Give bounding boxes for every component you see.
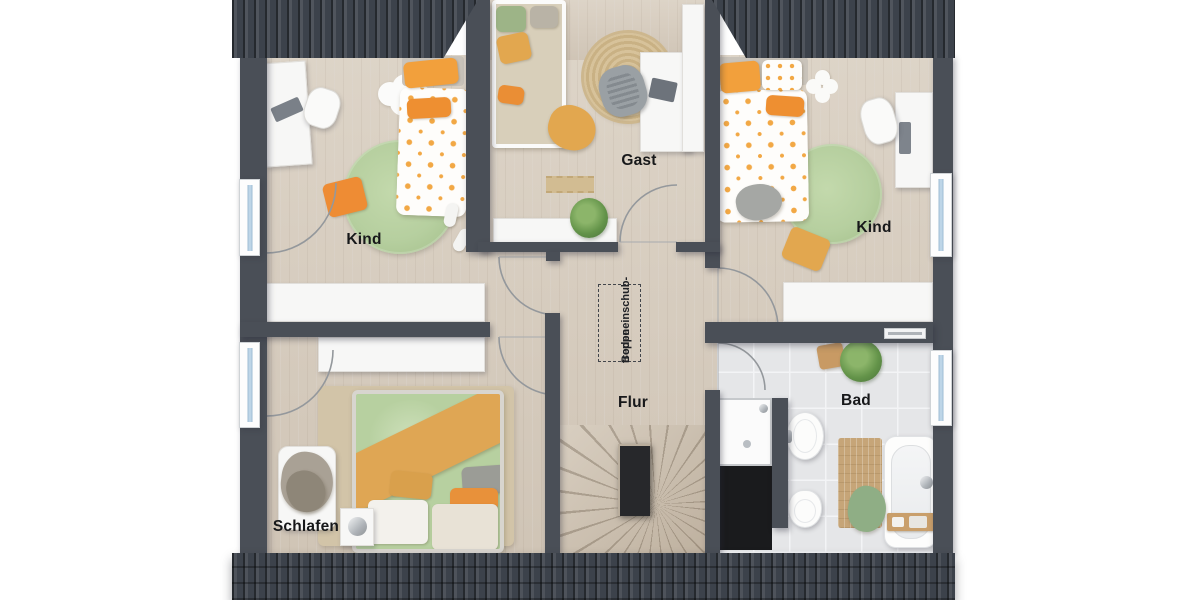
door-arc-bad — [718, 343, 765, 390]
window-glass — [247, 348, 252, 422]
roof-top-left — [232, 0, 478, 58]
wall-west — [240, 55, 267, 553]
roof-top-right — [712, 0, 955, 58]
wall-gast-south-right — [676, 242, 720, 252]
window-glass — [939, 355, 944, 420]
door-arc-kind-right — [718, 268, 778, 328]
wall-gast-west — [466, 0, 490, 252]
room-label-bad: Bad — [814, 392, 898, 410]
window-west-lower — [239, 342, 260, 428]
window-east-upper — [930, 173, 952, 257]
room-label-kind-left: Kind — [322, 231, 406, 249]
wall-east — [933, 55, 953, 553]
window-glass — [939, 179, 944, 251]
window-west-upper — [239, 179, 260, 256]
attic-stairs-outline: Bodeneinschub- treppe — [598, 284, 641, 362]
wall-flur-east-lower — [705, 390, 720, 553]
room-label-gast: Gast — [597, 152, 681, 170]
room-label-schlafen: Schlafen — [256, 518, 356, 536]
window-glass — [247, 185, 252, 251]
plant-gast — [570, 198, 608, 238]
towel-rail — [884, 328, 926, 339]
window-east-lower — [930, 350, 952, 426]
room-label-flur: Flur — [591, 394, 675, 412]
wall-stub-kind-left-door — [546, 252, 560, 261]
wall-gast-east — [705, 0, 720, 268]
wall-gast-south-left — [478, 242, 618, 252]
tub-faucet — [920, 476, 933, 489]
room-label-kind-right: Kind — [832, 219, 916, 237]
wall-bad-partition — [772, 398, 788, 528]
wall-stair-west — [545, 313, 560, 553]
dark-shaft — [717, 466, 772, 550]
plant-bad — [840, 340, 882, 382]
floor-plan: Bodeneinschub- treppe Kind Gast Kind Flu… — [0, 0, 1200, 600]
wall-divider-kind-schlafen — [240, 322, 490, 337]
roof-bottom — [232, 553, 955, 600]
door-arc-kind-left — [499, 257, 557, 315]
door-arc-gast — [620, 185, 677, 242]
window-arc-west-lower — [267, 350, 333, 416]
